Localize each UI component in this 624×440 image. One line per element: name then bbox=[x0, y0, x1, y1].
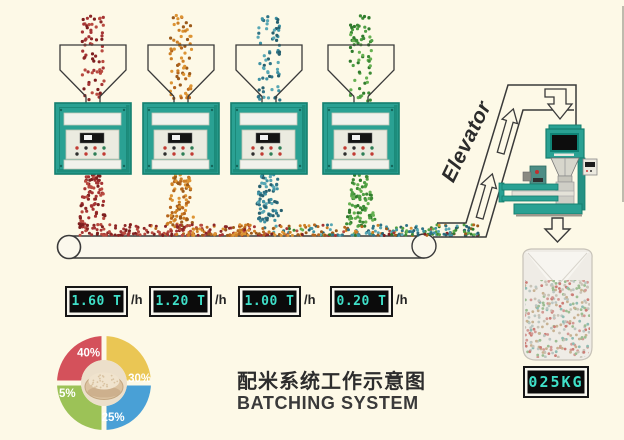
belt-roller-left bbox=[58, 236, 81, 259]
pie-label-2: 30% bbox=[128, 373, 151, 385]
bowl-of-rice-image bbox=[81, 360, 127, 406]
sewing-head bbox=[523, 166, 546, 184]
control-panel bbox=[242, 130, 295, 159]
discharge-bend-arrow bbox=[545, 89, 572, 119]
grain-stream-top-4 bbox=[349, 14, 374, 102]
throughput-unit-2: /h bbox=[215, 292, 227, 307]
batching-system-diagram: 40%30%25%5% 1.60 T/h1.20 T/h1.00 T/h0.20… bbox=[0, 0, 624, 440]
ratio-pie-chart: 40%30%25%5% bbox=[52, 331, 156, 435]
throughput-unit-4: /h bbox=[396, 292, 408, 307]
up-flow-arrow-1 bbox=[472, 172, 500, 221]
throughput-display-4: 0.20 T bbox=[330, 286, 393, 317]
batching-machine-2 bbox=[143, 103, 219, 174]
bag-weight-display: 025KG bbox=[523, 366, 589, 398]
throughput-display-3: 1.00 T bbox=[238, 286, 301, 317]
throughput-unit-1: /h bbox=[131, 292, 143, 307]
grain-stream-bottom-1 bbox=[78, 173, 107, 229]
grain-stream-bottom-2 bbox=[166, 173, 195, 230]
grain-stream-top-1 bbox=[81, 15, 106, 102]
grain-stream-top-3 bbox=[257, 15, 282, 102]
control-panel bbox=[334, 130, 387, 159]
caption-chinese: 配米系统工作示意图 bbox=[237, 371, 426, 393]
throughput-display-1: 1.60 T bbox=[65, 286, 128, 317]
bag-fill-arrow bbox=[545, 218, 570, 242]
packer-control-panel bbox=[583, 159, 597, 175]
throughput-display-2: 1.20 T bbox=[149, 286, 212, 317]
control-panel bbox=[66, 130, 119, 159]
grain-stream-bottom-3 bbox=[256, 173, 283, 229]
grain-stream-top-2 bbox=[169, 14, 194, 100]
pie-label-4: 5% bbox=[59, 388, 76, 400]
grain-bag bbox=[523, 249, 592, 360]
throughput-unit-3: /h bbox=[304, 292, 316, 307]
belt-roller-right bbox=[412, 234, 436, 258]
caption-english: BATCHING SYSTEM bbox=[237, 393, 426, 413]
grain-stream-bottom-4 bbox=[345, 174, 376, 228]
batching-machine-4 bbox=[323, 103, 399, 174]
pie-label-1: 40% bbox=[77, 348, 100, 360]
control-panel bbox=[154, 130, 207, 159]
packer-screen bbox=[551, 134, 578, 151]
conveyor-belt bbox=[58, 234, 437, 259]
batching-machine-1 bbox=[55, 103, 131, 174]
batching-machine-3 bbox=[231, 103, 307, 174]
caption: 配米系统工作示意图 BATCHING SYSTEM bbox=[237, 371, 426, 413]
pie-label-3: 25% bbox=[102, 412, 125, 424]
hopper-2 bbox=[148, 45, 214, 103]
